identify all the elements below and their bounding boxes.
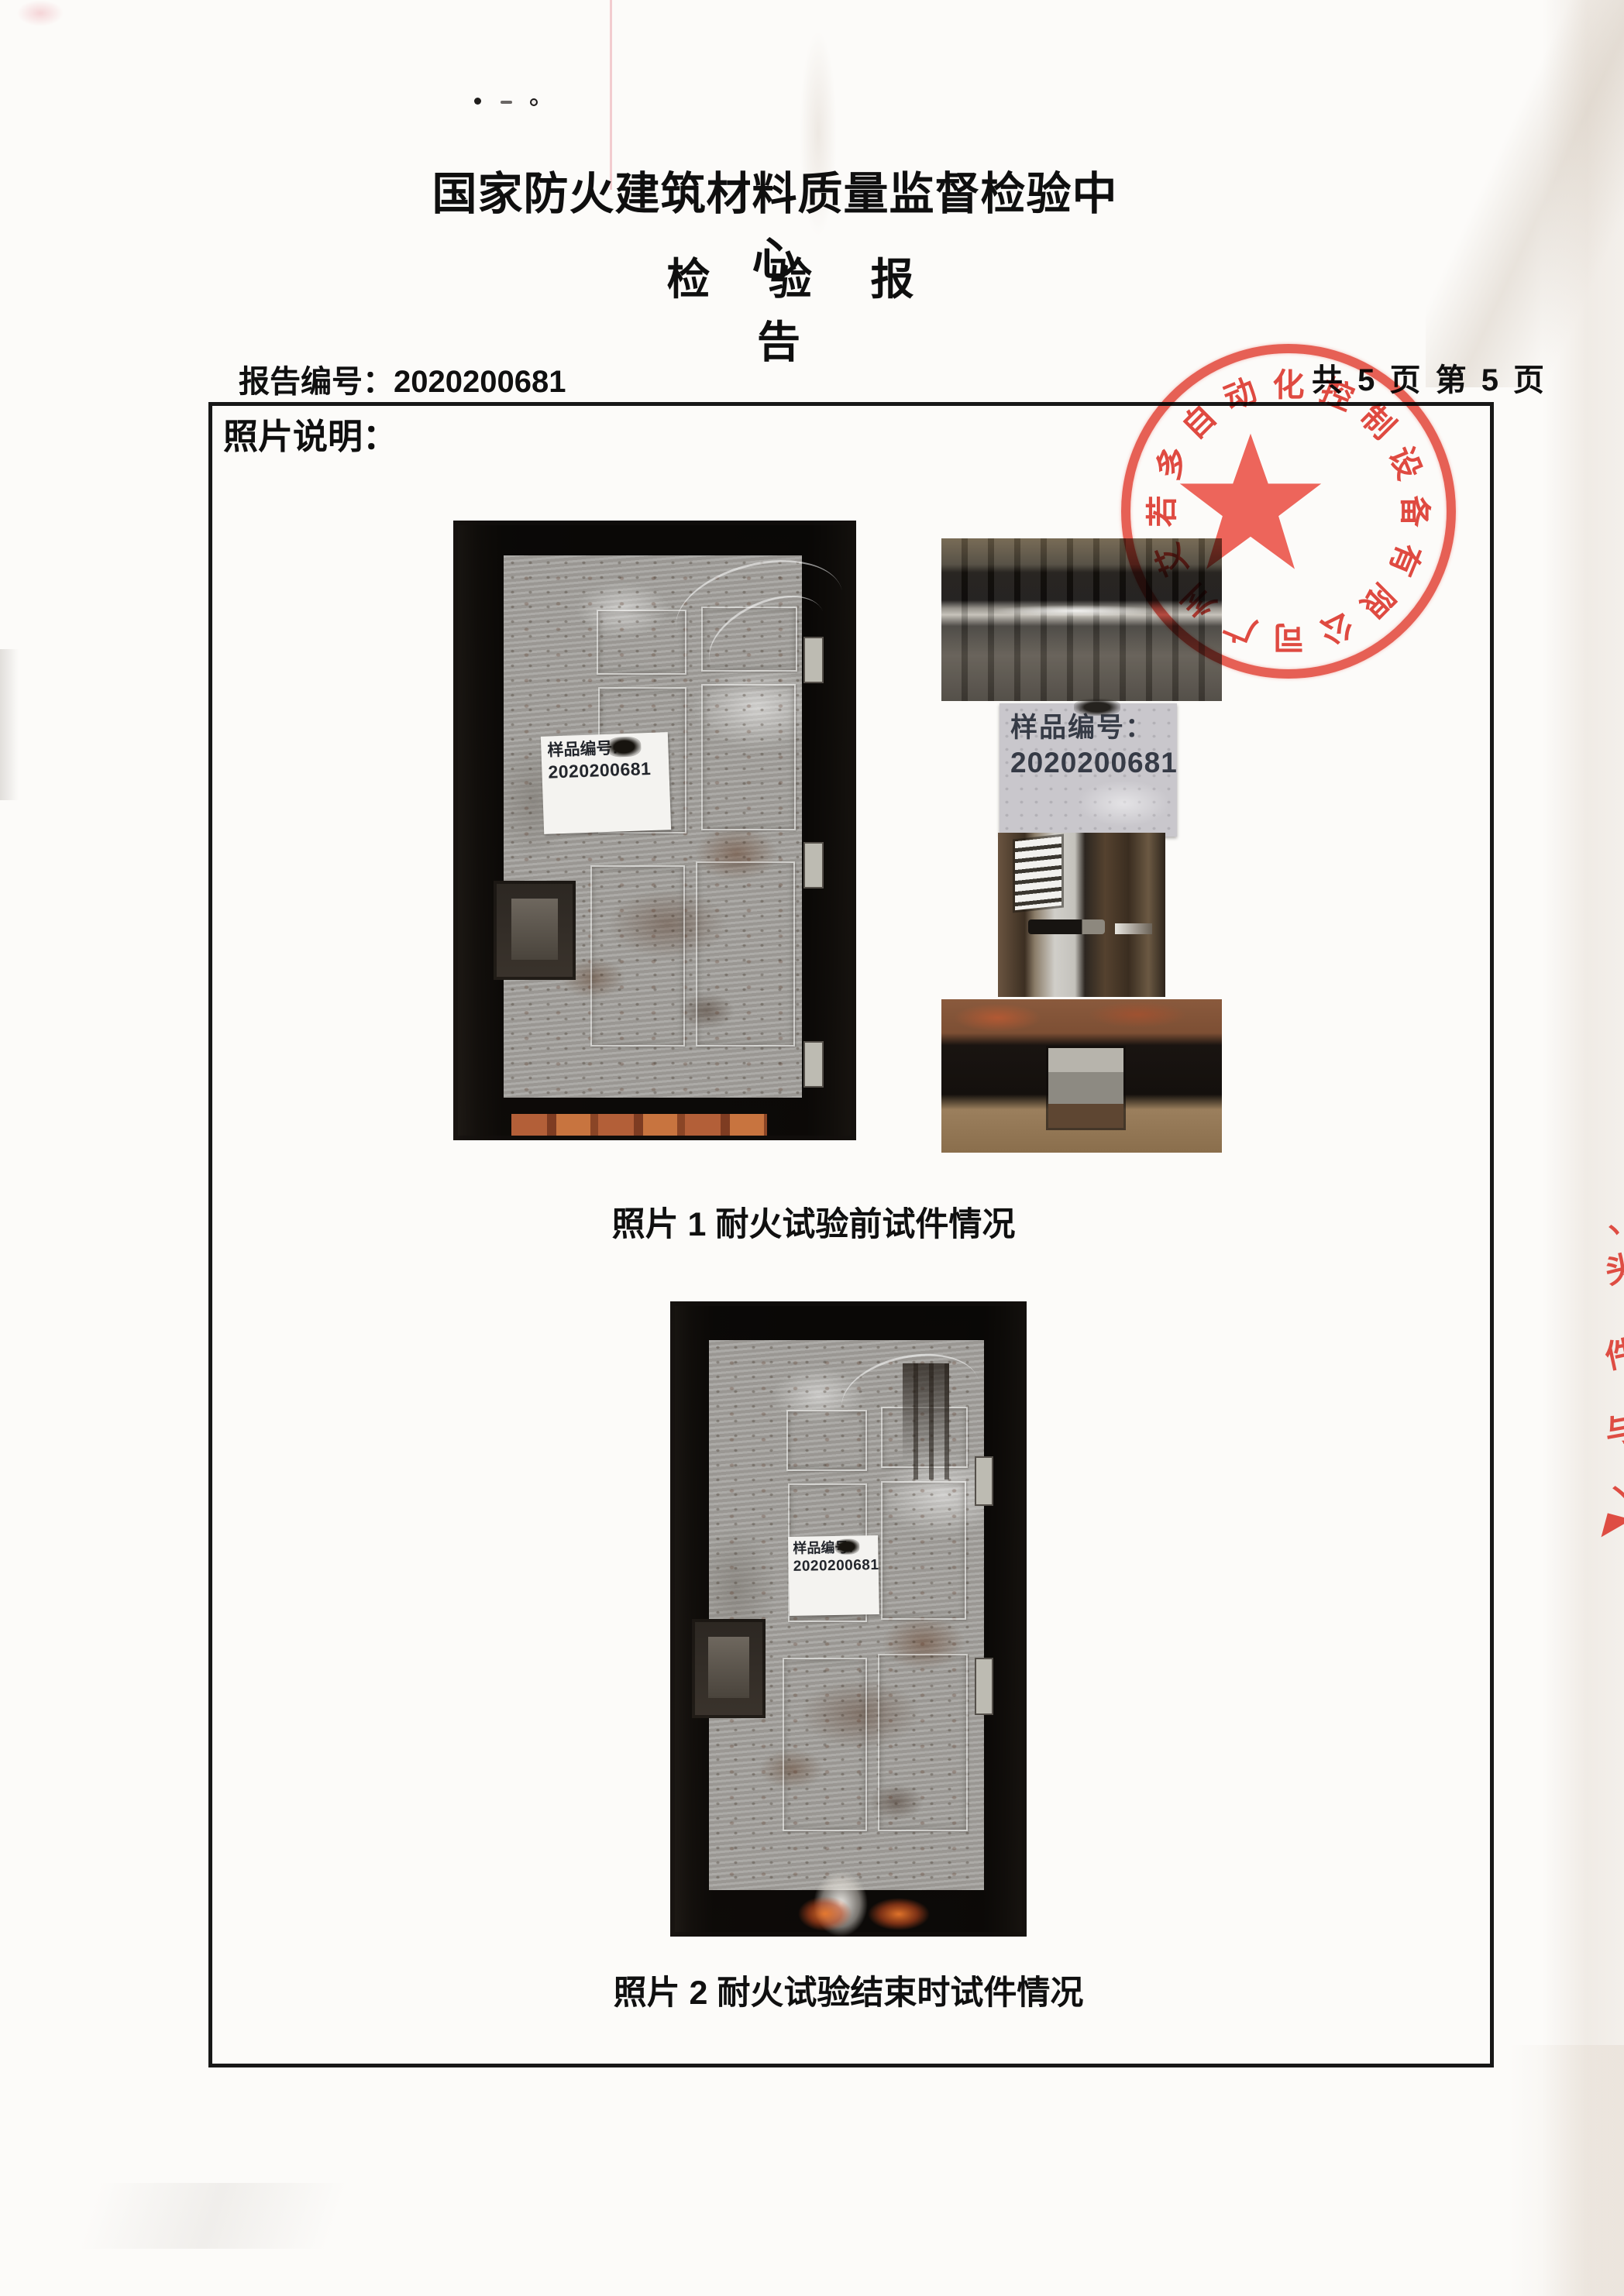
report-title: 检 验 报 告	[624, 245, 957, 370]
ink-smudge	[834, 1538, 859, 1555]
star-icon	[1177, 431, 1324, 578]
brick-floor	[511, 1114, 767, 1136]
sample-id-card-number: 2020200681	[1010, 745, 1177, 781]
photo-lock-detail	[998, 833, 1165, 997]
sample-id-card-label: 样品编号：	[1010, 711, 1177, 745]
seal-character: 备	[1398, 494, 1432, 528]
report-number-row: 报告编号：2020200681	[239, 356, 566, 401]
door-hinge	[803, 637, 824, 683]
seal-character: 化	[1271, 368, 1306, 402]
door-panel	[597, 610, 686, 675]
photo1-caption: 照片 1 耐火试验前试件情况	[542, 1198, 1085, 1246]
photo-furnace-bottom	[941, 999, 1222, 1153]
door-lock-box	[692, 1619, 766, 1718]
scan-artifact-top-left-smudge	[17, 0, 64, 26]
soot-drip	[903, 1363, 949, 1480]
sample-id-tag-number: 2020200681	[548, 758, 663, 784]
door-panel	[701, 684, 796, 830]
scan-artifact-top-right-streak	[1426, 0, 1624, 387]
door-hinge	[803, 842, 824, 888]
door-hinge	[975, 1658, 993, 1715]
photo2-caption: 照片 2 耐火试验结束时试件情况	[577, 1966, 1120, 2014]
photo-specimen-before: 样品编号: 2020200681	[453, 521, 856, 1140]
door-panel	[881, 1481, 966, 1620]
report-number-value: 2020200681	[394, 365, 566, 399]
door-lock-box	[494, 881, 576, 980]
door-hinge	[803, 1041, 824, 1088]
scan-artifact-bottom-right	[1509, 2045, 1624, 2296]
vent-grille	[1015, 837, 1061, 910]
ink-smudge	[1074, 699, 1120, 716]
door-panel	[878, 1654, 968, 1831]
door-handle	[1028, 919, 1105, 934]
red-ink-fragments: 丷头件与丶◤	[1601, 1197, 1624, 1553]
door-panel	[783, 1658, 867, 1831]
seal-character: 司	[1271, 620, 1306, 655]
scan-artifact-bottom-streak	[78, 2183, 348, 2249]
ink-smudge	[607, 736, 642, 758]
scan-artifact-left-smudge	[0, 649, 19, 800]
sample-id-tag: 样品编号: 2020200681	[541, 732, 671, 834]
sample-id-card: 样品编号： 2020200681	[1000, 703, 1177, 837]
sample-id-tag-label: 样品编号:	[793, 1538, 873, 1557]
seal-character: 若	[1145, 494, 1179, 528]
door-handle-far	[1115, 923, 1152, 935]
sample-id-tag: 样品编号: 2020200681	[788, 1535, 879, 1616]
fire-glow	[868, 1898, 930, 1930]
red-ink-fragment: 件	[1601, 1325, 1624, 1378]
red-ink-fragment: 头	[1601, 1240, 1624, 1294]
ink-dash	[501, 101, 512, 104]
photo-specimen-after: 样品编号: 2020200681	[670, 1301, 1027, 1937]
door-hinge	[975, 1456, 993, 1506]
scan-artifact-right-band	[1542, 0, 1624, 2296]
ink-speck	[530, 98, 538, 106]
door-panel	[590, 865, 685, 1047]
door-panel	[696, 861, 795, 1047]
ink-speck	[474, 98, 481, 105]
concrete-block	[1048, 1048, 1124, 1128]
report-number-label: 报告编号：	[239, 365, 394, 399]
company-seal-stamp: 广州艾若多自动化控制设备有限公司	[1121, 344, 1456, 679]
sample-id-tag-number: 2020200681	[793, 1556, 874, 1576]
red-ink-fragment: 与	[1601, 1402, 1624, 1454]
photo-note-label: 照片说明：	[223, 408, 397, 459]
scanned-report-page: { "header": { "center_name": "国家防火建筑材料质量…	[0, 0, 1624, 2296]
fire-glow	[798, 1896, 852, 1931]
